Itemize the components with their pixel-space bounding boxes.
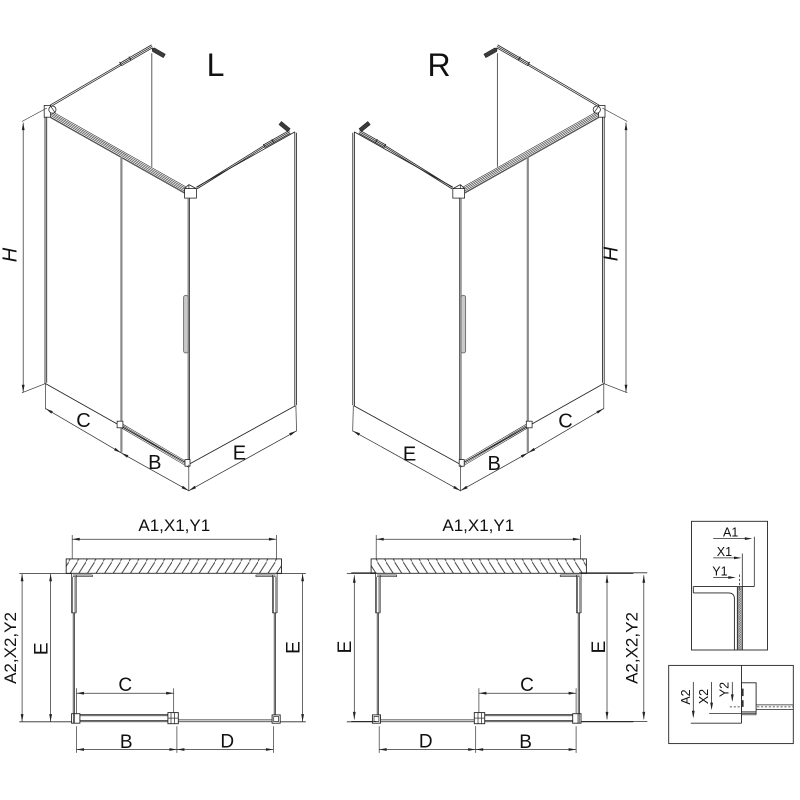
svg-text:B: B xyxy=(519,732,532,753)
svg-text:D: D xyxy=(419,731,433,752)
svg-text:H: H xyxy=(0,247,21,262)
svg-text:Y2: Y2 xyxy=(718,682,732,697)
svg-text:A1: A1 xyxy=(723,526,738,540)
svg-text:H: H xyxy=(601,246,623,261)
svg-text:E: E xyxy=(335,641,356,654)
svg-text:A2,X2,Y2: A2,X2,Y2 xyxy=(1,612,20,684)
svg-text:C: C xyxy=(558,411,572,433)
svg-text:X1: X1 xyxy=(717,545,732,559)
svg-text:E: E xyxy=(31,642,52,655)
svg-text:E: E xyxy=(589,641,610,654)
svg-text:L: L xyxy=(207,47,225,83)
svg-text:E: E xyxy=(233,443,246,465)
svg-text:E: E xyxy=(284,641,305,654)
svg-text:B: B xyxy=(120,732,133,753)
svg-text:C: C xyxy=(118,675,132,696)
svg-text:A1,X1,Y1: A1,X1,Y1 xyxy=(138,516,210,535)
svg-text:X2: X2 xyxy=(697,689,711,704)
svg-text:D: D xyxy=(220,731,234,752)
svg-text:B: B xyxy=(148,452,161,474)
svg-text:E: E xyxy=(403,444,416,466)
svg-text:C: C xyxy=(76,410,90,432)
svg-text:R: R xyxy=(427,47,450,83)
svg-text:Y1: Y1 xyxy=(712,564,727,578)
svg-text:C: C xyxy=(520,675,534,696)
svg-text:A2: A2 xyxy=(679,689,693,704)
svg-text:B: B xyxy=(488,453,501,475)
svg-text:A2,X2,Y2: A2,X2,Y2 xyxy=(623,612,642,684)
svg-text:A1,X1,Y1: A1,X1,Y1 xyxy=(442,516,514,535)
